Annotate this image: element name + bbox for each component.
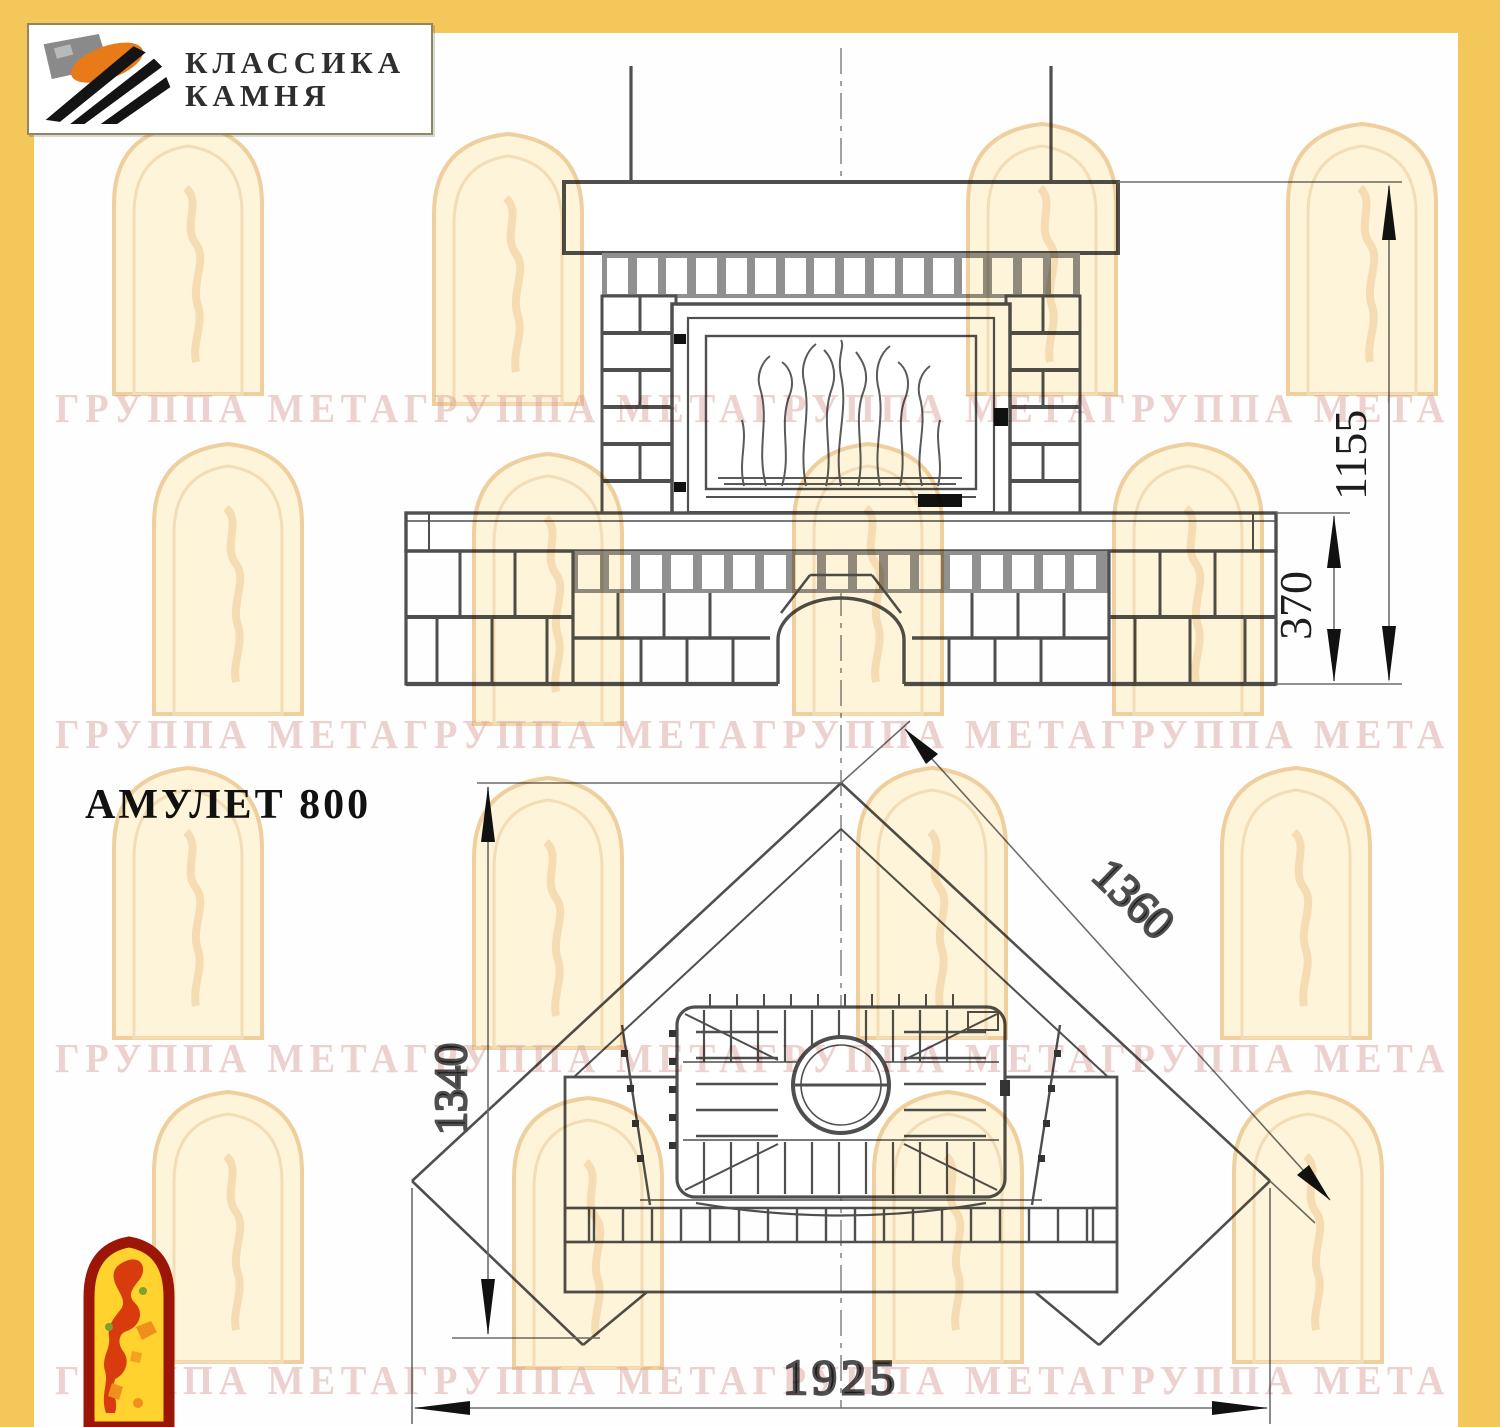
dim-label-plan-side: 1360 <box>1083 849 1185 950</box>
stone-classic-logo-icon <box>39 32 177 126</box>
dim-label-bench-height: 370 <box>1270 571 1321 640</box>
door-hinge-top <box>674 334 686 344</box>
watermark-text-row1: ГРУППА МЕТАГРУППА МЕТАГРУППА МЕТАГРУППА … <box>55 385 1450 431</box>
company-logo: КЛАССИКА КАМНЯ <box>27 23 433 135</box>
watermark-text-row3: ГРУППА МЕТАГРУППА МЕТАГРУППА МЕТАГРУППА … <box>55 1035 1450 1081</box>
logo-text-line2: КАМНЯ <box>185 79 405 112</box>
metagruppa-arch-emblem-icon <box>80 1233 178 1427</box>
fireplace-technical-drawing: 1155 370 <box>0 0 1500 1427</box>
door-hinge-bottom <box>674 482 686 492</box>
page: КЛАССИКА КАМНЯ <box>0 0 1500 1427</box>
watermark-text-row2: ГРУППА МЕТАГРУППА МЕТАГРУППА МЕТАГРУППА … <box>55 711 1450 757</box>
logo-text-line1: КЛАССИКА <box>185 46 405 79</box>
watermark-text-row4: ГРУППА МЕТАГРУППА МЕТАГРУППА МЕТАГРУППА … <box>55 1357 1450 1403</box>
